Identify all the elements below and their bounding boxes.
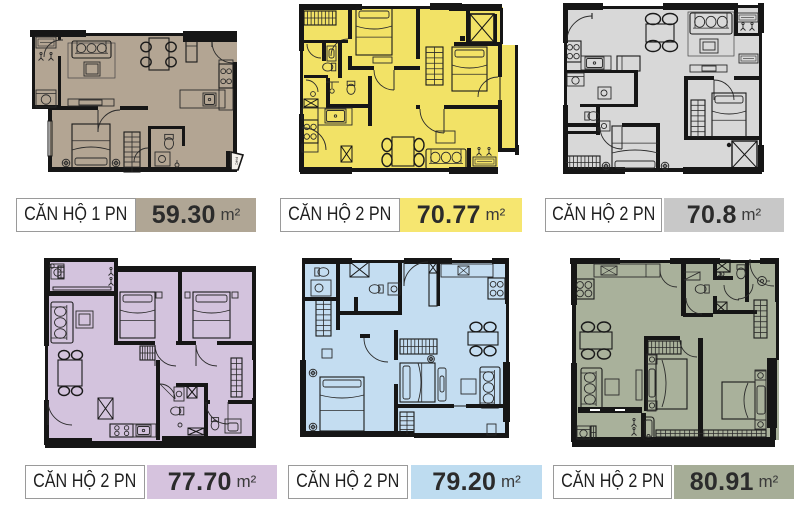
svg-text:FHC: FHC [235, 157, 240, 165]
